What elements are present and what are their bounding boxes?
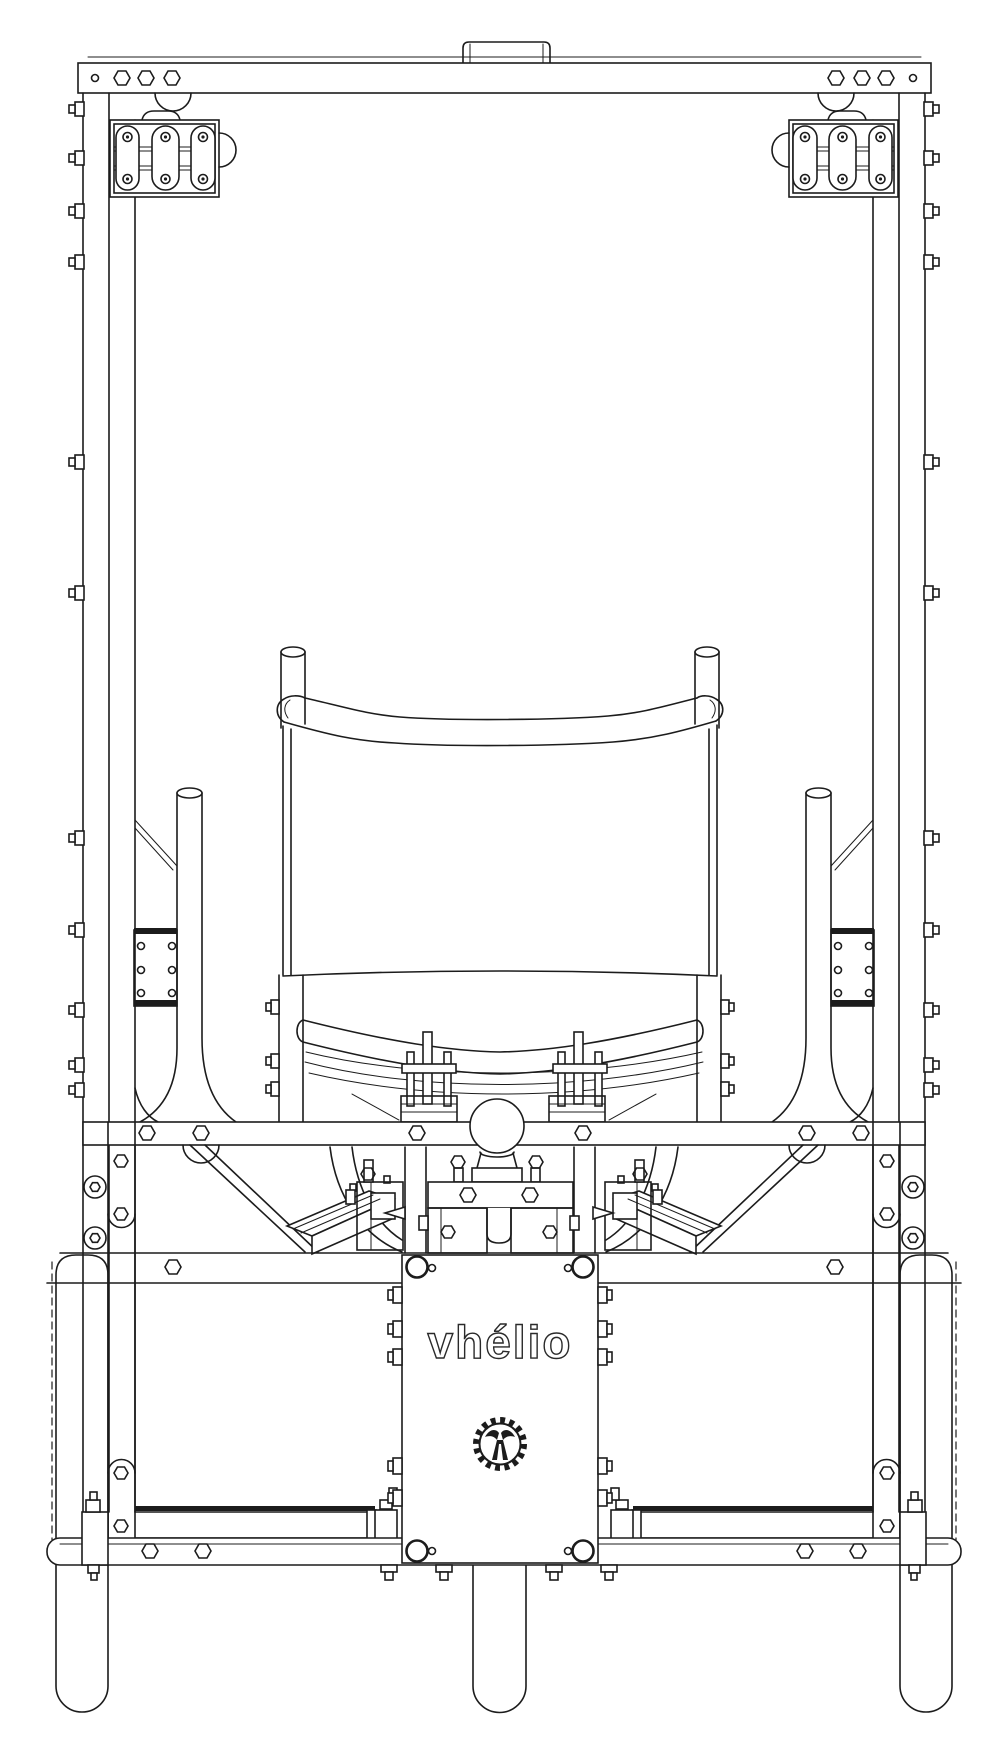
right-headrest-post-cap (695, 647, 719, 657)
hitch-bracket (428, 1182, 573, 1208)
center-cover-plate: vhélio (388, 1255, 612, 1563)
center-wheel (473, 1558, 526, 1713)
left-wheel (56, 1255, 108, 1712)
vhelio-rear-view-drawing: vhélio (0, 0, 1008, 1756)
left-light-panel (110, 111, 236, 197)
roof-handle-tab (463, 42, 550, 63)
seat-back-panel-edges (283, 725, 717, 975)
left-grab-tube (135, 788, 236, 1122)
hitch-pin-slot (487, 1208, 511, 1243)
bolt-lobe (155, 93, 191, 111)
left-post-clips (69, 102, 84, 1097)
right-wheel (900, 1255, 952, 1712)
vhelio-wordmark: vhélio (428, 1316, 573, 1368)
left-headrest-post-cap (281, 647, 305, 657)
right-grab-tube (772, 788, 873, 1122)
left-ladder-panel (134, 928, 177, 1006)
tow-ball (470, 1099, 524, 1153)
left-u-bolt-clamp (401, 1032, 457, 1122)
bolt-lobe (818, 93, 854, 111)
right-post-clips (924, 102, 939, 1097)
seat-bottom-tube (303, 1020, 697, 1052)
right-light-panel (772, 111, 898, 197)
right-ladder-panel (831, 928, 874, 1006)
technical-drawing-page: vhélio (0, 0, 1008, 1756)
seat-back-crossbar (305, 698, 697, 720)
seat-back-panel-bottom (283, 971, 717, 976)
seat-back (277, 647, 723, 976)
right-u-bolt-clamp (549, 1032, 607, 1122)
roof-crossbar (78, 42, 931, 111)
right-grease-fitting (593, 1207, 613, 1219)
